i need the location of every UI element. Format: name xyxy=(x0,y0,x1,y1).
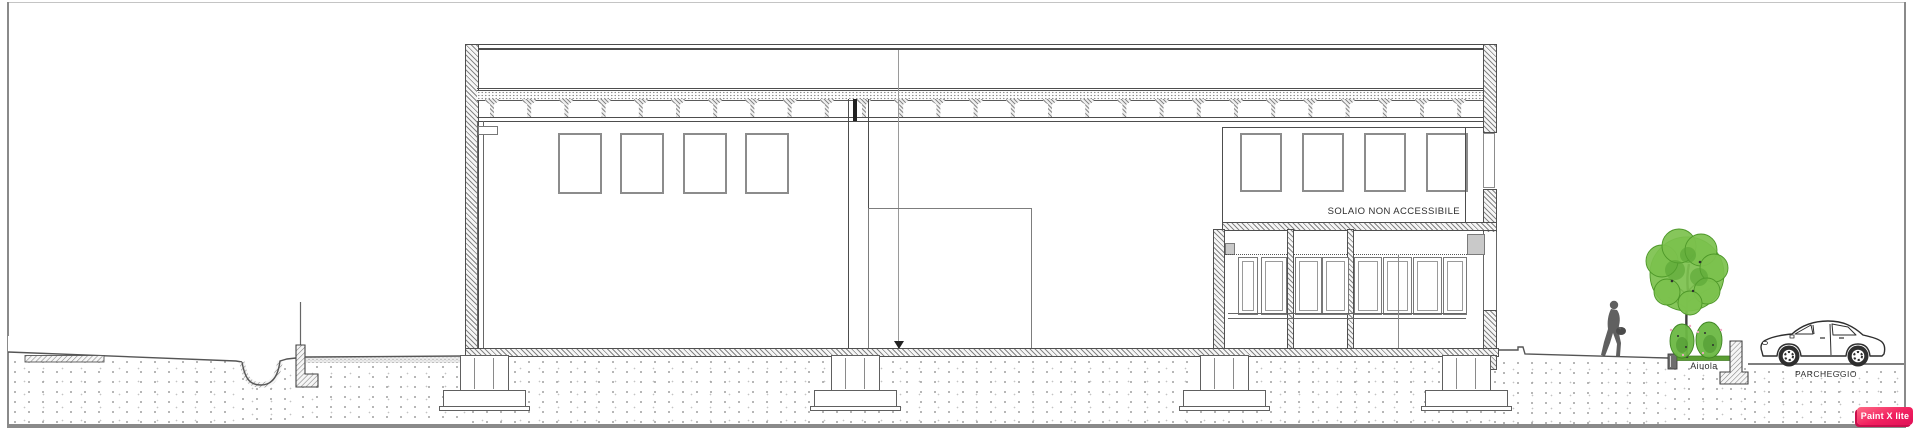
parcheggio-label: PARCHEGGIO xyxy=(1788,369,1864,379)
car xyxy=(1761,321,1885,367)
shrubs xyxy=(1670,322,1722,358)
watermark-badge[interactable]: Paint X lite xyxy=(1857,407,1913,425)
aiuola-label: Aiuola xyxy=(1682,361,1726,371)
person-figure xyxy=(1601,301,1626,356)
section-drawing: SOLAIO NON ACCESSIBILE xyxy=(0,0,1920,432)
entourage xyxy=(0,0,1920,432)
watermark-label: Paint X lite xyxy=(1861,411,1909,421)
